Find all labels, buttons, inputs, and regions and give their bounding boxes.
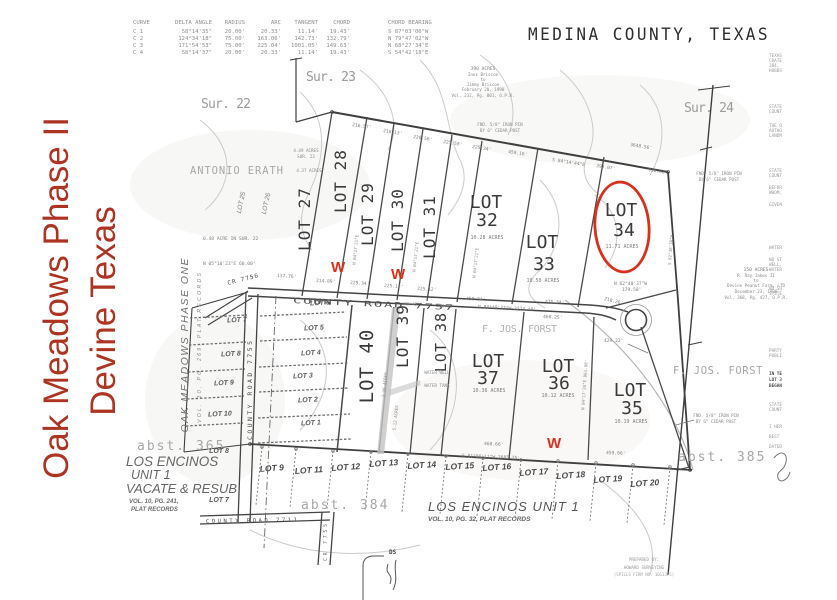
lot-label: LOT 12 bbox=[331, 461, 361, 473]
bearing-lotline: N 04°17'21"E bbox=[351, 234, 359, 265]
road-7757-label: COUNTY ROAD 7757 bbox=[293, 296, 455, 312]
lot-label: LOT 17 bbox=[519, 466, 550, 478]
plat-map-svg: MEDINA COUNTY, TEXAS CURVE DELTA ANGLE R… bbox=[0, 0, 837, 600]
curve-cell: 58°14'35" bbox=[182, 29, 212, 35]
curve-cell: 75.00' bbox=[225, 43, 245, 49]
prepared-line: HOWARD SURVEYING bbox=[624, 565, 665, 570]
resub-vol: VOL. 10, PG. 241, bbox=[129, 499, 179, 505]
lot-label: LOT 11 bbox=[294, 464, 323, 476]
lot-34-label: LOT bbox=[605, 200, 638, 221]
lot-label: LOT 15 bbox=[445, 460, 475, 472]
pin-note: FND. 5/8" IRON PIN bbox=[693, 413, 739, 418]
lot-label: LOT 3 bbox=[293, 372, 313, 380]
curve-cell: 171°54'53" bbox=[178, 43, 212, 49]
resub-title: VACATE & RESUB bbox=[126, 481, 237, 496]
bearing-label: N 83°49'37"W 2273.40' bbox=[478, 304, 536, 313]
margin-fragment: DATED bbox=[769, 444, 782, 450]
curve-cell: 19.43' bbox=[330, 29, 350, 35]
bearing-lotline: N 04°17'21"E bbox=[471, 247, 479, 278]
margin-fragment: WATER bbox=[769, 267, 782, 273]
pin-note: BY 6" CEDAR POST bbox=[480, 128, 521, 133]
curve-cell: S 87°03'06"W bbox=[388, 29, 429, 35]
lot-label: LOT 2 bbox=[298, 396, 318, 404]
pin-note: BY 6" CEDAR POST bbox=[696, 419, 737, 424]
lot-40-label: LOT 40 bbox=[356, 329, 378, 404]
curve-cell: 124°34'18" bbox=[178, 36, 212, 42]
encinos-unit1-subtitle: VOL. 10, PG. 32, PLAT RECORDS bbox=[428, 516, 531, 523]
prepared-line: (SPILLS FIRM NO. 1011375) bbox=[614, 572, 674, 577]
lot-37-acres: 10.36 ACRES bbox=[472, 388, 505, 394]
dimension-459: 459.06' bbox=[606, 450, 626, 457]
lot-36-number: 36 bbox=[548, 373, 570, 394]
dimension-label: 229.34' bbox=[350, 280, 370, 287]
dimension-label: 220.56' bbox=[413, 134, 433, 143]
margin-fragment: BEGAN bbox=[769, 383, 782, 389]
deed-line: February 20, 1990 bbox=[462, 87, 505, 92]
prepared-line: PREPARED BY: bbox=[629, 557, 659, 562]
lot-34-number: 34 bbox=[613, 220, 635, 241]
encinos-unit1-title: LOS ENCINOS UNIT 1 bbox=[428, 499, 580, 514]
margin-fragment: GIVEN bbox=[769, 202, 782, 208]
curve-cell: N 68°27'34"E bbox=[388, 43, 429, 49]
lot-35-acres: 10.19 ACRES bbox=[614, 419, 647, 425]
curve-col-header: CHORD bbox=[333, 20, 350, 26]
margin-fragment: LOT 3 bbox=[769, 377, 782, 383]
curve-cell: 132.79' bbox=[326, 36, 350, 42]
abstract-384: abst. 384 bbox=[301, 498, 389, 513]
lot-label: LOT 7 bbox=[209, 497, 230, 504]
lot-33-acres: 10.50 ACRES bbox=[526, 278, 559, 284]
lot-37-number: 37 bbox=[477, 368, 499, 389]
curve-col-header: CURVE bbox=[133, 20, 150, 26]
phase-one-title: OAK MEADOWS PHASE ONE bbox=[179, 258, 191, 433]
lot-label: LOT 4 bbox=[301, 349, 321, 357]
scan-texture bbox=[130, 75, 750, 485]
dimension-label: 218.26' bbox=[604, 296, 624, 307]
dimension-label: 214.89' bbox=[316, 278, 336, 285]
curve-cell: 75.00' bbox=[225, 36, 245, 42]
lot-label: LOT 8 bbox=[209, 448, 229, 455]
resub-vol: PLAT RECORDS bbox=[131, 507, 178, 513]
county-header: MEDINA COUNTY, TEXAS bbox=[528, 25, 770, 44]
lot-30-label: LOT 30 bbox=[388, 188, 407, 252]
water-mark-1: W bbox=[331, 259, 346, 276]
ds-label: DS bbox=[389, 549, 397, 556]
dimension-label: 475.34' bbox=[545, 299, 565, 306]
lot-label: LOT 10 bbox=[208, 410, 232, 418]
lot-label: LOT 8 bbox=[221, 350, 241, 358]
curve-cell: 20.00' bbox=[225, 29, 245, 35]
margin-fragment: I HER bbox=[769, 424, 782, 430]
curve-cell: N 79°47'02"W bbox=[388, 36, 429, 42]
survey-22-label: Sur. 22 bbox=[201, 97, 253, 112]
curve-col-header: CHORD BEARING bbox=[388, 20, 432, 26]
sur22-acre-note: 0.48 ACRE IN SUR. 22 bbox=[203, 236, 259, 242]
survey-23-label: Sur. 23 bbox=[306, 70, 358, 85]
dimension-46066: 460.66' bbox=[484, 441, 504, 448]
lot-27-label: LOT 27 bbox=[295, 187, 314, 251]
dimension-label: 225.12' bbox=[384, 283, 404, 290]
lot27-note-acres: 4.49 ACRES bbox=[293, 148, 319, 153]
margin-fragment: BEST bbox=[769, 434, 780, 440]
pin-note: FND. 5/8" IRON PIN bbox=[696, 171, 742, 176]
road-7756-label: CR 7756 bbox=[227, 272, 260, 287]
lot27-note-sur: SUR. 23 bbox=[297, 154, 315, 159]
lot-28-label: LOT 28 bbox=[331, 149, 350, 213]
dimension-label: 458.34' bbox=[466, 296, 486, 303]
lot-33-number: 33 bbox=[533, 254, 555, 275]
water-tank-note: WATER TANK bbox=[424, 383, 450, 388]
curve-cell: 11.14' bbox=[298, 29, 318, 35]
lot-34-acres: 11.71 ACRES bbox=[605, 244, 638, 250]
plat-scan-page: Oak Meadows Phase II Devine Texas bbox=[0, 0, 837, 600]
curve-cell: C 4 bbox=[133, 50, 144, 56]
lot-31-label: LOT 31 bbox=[420, 195, 439, 259]
curve-cell: 20.33' bbox=[261, 50, 281, 56]
lot-label: LOT 14 bbox=[407, 459, 437, 471]
curve-cell: C 2 bbox=[133, 36, 143, 42]
dimension-lot34: 179.50' bbox=[622, 287, 641, 293]
road-7755-label: COUNTY ROAD 7755 bbox=[246, 340, 254, 440]
lot-33-label: LOT bbox=[526, 232, 559, 253]
curve-cell: 225.04' bbox=[257, 43, 281, 49]
bearing-lotline: N 04°17'21"E bbox=[411, 241, 419, 272]
bearing-n0510: N 05°10'23"E 60.00' bbox=[203, 261, 256, 267]
curve-cell: 58°14'37" bbox=[182, 50, 212, 56]
bearing-eastline: S 02°38'30"W bbox=[667, 234, 674, 265]
lot-label: LOT 1 bbox=[301, 419, 321, 427]
lot-label: LOT 13 bbox=[369, 457, 399, 469]
water-well-note: WATER WELL bbox=[424, 370, 450, 375]
margin-fragment: SYSTE bbox=[769, 291, 782, 297]
deed-line: Vol. 232, Pg. 801, O.P.R. bbox=[451, 93, 514, 98]
lot-label: LOT 19 bbox=[593, 473, 623, 485]
lot-32-acres: 10.28 ACRES bbox=[470, 235, 503, 241]
pin-note: FND. 5/8" IRON PIN bbox=[477, 122, 523, 127]
margin-fragment: COUNT bbox=[769, 109, 782, 115]
curve-cell: 19.43' bbox=[330, 50, 350, 56]
lot-39-label: LOT 39 bbox=[393, 304, 412, 368]
landowner-erath: ANTONIO ERATH bbox=[190, 165, 286, 177]
curve-cell: 163.06' bbox=[257, 36, 281, 42]
lot-35-number: 35 bbox=[621, 398, 643, 419]
lot-label: LOT 18 bbox=[556, 469, 586, 481]
lot-label: LOT 16 bbox=[482, 461, 512, 473]
margin-fragment: WHOM, bbox=[769, 190, 782, 196]
lot-29-label: LOT 29 bbox=[358, 182, 377, 246]
curve-cell: C 1 bbox=[133, 29, 143, 35]
lot27-note-acres2: 4.37 ACRES bbox=[296, 168, 322, 173]
curve-cell: S 54°42'18"E bbox=[388, 50, 429, 56]
resub-title: UNIT 1 bbox=[131, 468, 171, 482]
bearing-lot34: N 62°40'37"W bbox=[614, 281, 647, 287]
road-7711-label: COUNTY ROAD 7711 bbox=[206, 517, 298, 525]
curve-col-header: DELTA ANGLE bbox=[175, 20, 213, 26]
curve-cell: 1001.05' bbox=[291, 43, 318, 49]
abstract-385: abst. 385 bbox=[678, 450, 766, 465]
landowner-forst-center: F. JOS. FORST bbox=[482, 324, 560, 335]
landowner-forst-east: F. JOS. FORST bbox=[673, 365, 765, 377]
margin-text-column: TEXAS CRATE 384, HOBBS STATE COUNT THE O… bbox=[769, 53, 782, 450]
lot-32-number: 32 bbox=[476, 210, 498, 231]
lot-label: LOT 9 bbox=[214, 379, 234, 387]
curve-cell: 142.73' bbox=[294, 36, 318, 42]
dimension-label: 137.76' bbox=[277, 273, 297, 280]
prepared-by-block: PREPARED BY: HOWARD SURVEYING (SPILLS FI… bbox=[614, 557, 674, 577]
lot-label: LOT 5 bbox=[304, 324, 324, 332]
road-7755-stub-label: CR 7755 bbox=[323, 523, 329, 561]
curve-cell: 20.00' bbox=[225, 50, 245, 56]
leader-line bbox=[628, 344, 648, 353]
curve-cell: C 3 bbox=[133, 43, 143, 49]
resub-title: LOS ENCINOS bbox=[126, 454, 218, 469]
water-mark-3: W bbox=[547, 435, 562, 452]
lot-36-acres: 10.12 ACRES bbox=[541, 393, 574, 399]
curve-col-header: TANGENT bbox=[294, 20, 318, 26]
margin-fragment: COUNT bbox=[769, 407, 782, 413]
margin-fragment: WATER bbox=[769, 245, 782, 251]
curve-cell: 20.33' bbox=[261, 29, 281, 35]
dimension-429: 429.22' bbox=[604, 338, 623, 344]
margin-fragment: COUNT bbox=[769, 173, 782, 179]
margin-fragment: LANDM bbox=[769, 133, 782, 139]
lot-38-label: LOT 38 bbox=[432, 312, 450, 372]
margin-fragment: HOBBS bbox=[769, 68, 782, 74]
curve-col-header: RADIUS bbox=[225, 20, 245, 26]
water-mark-2: W bbox=[391, 266, 406, 283]
dimension-label: 225.12' bbox=[417, 286, 437, 293]
survey-24-label: Sur. 24 bbox=[684, 101, 736, 116]
lot-label: LOT 9 bbox=[259, 462, 284, 474]
margin-fragment: IN TE bbox=[769, 371, 782, 377]
dimension-label: 216.57' bbox=[352, 122, 372, 131]
lot-label: LOT 7 bbox=[227, 316, 248, 324]
dimension-label: 460.25' bbox=[543, 314, 563, 321]
curve-table: CURVE DELTA ANGLE RADIUS ARC TANGENT CHO… bbox=[133, 20, 432, 56]
ds-detail bbox=[363, 556, 396, 600]
pin-note: BY 6" CEDAR POST bbox=[699, 177, 740, 182]
curve-col-header: ARC bbox=[271, 20, 281, 26]
margin-fragment: PUBLI bbox=[769, 353, 782, 359]
lot-label: LOT 20 bbox=[630, 477, 660, 489]
curve-cell: 149.63' bbox=[326, 43, 350, 49]
curve-cell: 11.14' bbox=[298, 50, 318, 56]
margin-signature bbox=[774, 453, 790, 481]
cul-de-sac bbox=[626, 310, 647, 331]
leader-line bbox=[676, 420, 694, 425]
